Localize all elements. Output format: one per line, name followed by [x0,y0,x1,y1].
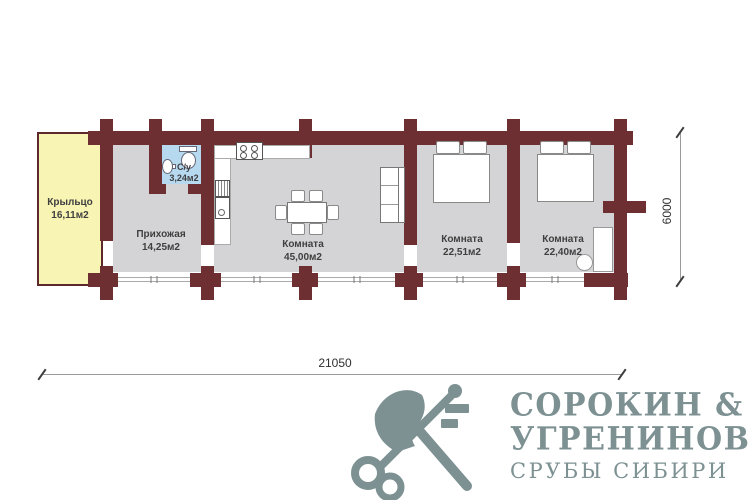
room-name: Крыльцо [47,196,93,209]
pillow [463,141,487,154]
logo-line1: СОРОКИН & [510,388,753,424]
living-bedroom1-wall [404,131,417,245]
double-bed [433,154,490,203]
room-label-bedroom2: Комната 22,40м2 [542,233,584,259]
room-area: 45,00м2 [282,251,324,264]
burner-icon [240,145,247,152]
room-label-bedroom1: Комната 22,51м2 [441,233,483,259]
window [221,274,292,286]
dimension-tick-icon [675,276,684,288]
bathroom-bottom-wall [149,184,166,194]
bottom-wall-segment [190,273,221,287]
pillow [436,141,460,154]
room-label-porch: Крыльцо 16,11м2 [47,196,93,222]
width-dimension-label: 21050 [318,356,351,370]
pillow [540,141,564,154]
chair [291,190,305,202]
room-name: Комната [282,238,324,251]
burner-icon [251,145,258,152]
floor-plan-page: Крыльцо 16,11м2 Прихожая 14,25м2 С/у 3,2… [0,0,753,502]
logo-line2: УГРЕНИНОВ [510,422,753,458]
chair [309,223,323,235]
room-label-hallway: Прихожая 14,25м2 [136,228,185,254]
bottom-wall-segment [88,273,118,287]
bottom-wall-segment [497,273,526,287]
stove [236,142,263,160]
room-label-bathroom: С/у 3,24м2 [169,162,198,184]
bedroom1-bedroom2-wall [507,131,520,243]
chair [291,223,305,235]
height-dimension-label: 6000 [660,191,674,231]
kitchen-cabinet [215,197,230,219]
axe-and-key-icon [345,378,495,500]
bottom-wall-segment [395,273,423,287]
sofa [380,167,399,223]
logo-line3: СРУБЫ СИБИРИ [510,458,753,484]
chair [309,190,323,202]
pillow [567,141,591,154]
room-area: 22,40м2 [542,246,584,259]
left-wall [100,131,113,241]
bathroom-bottom-wall [188,184,214,194]
room-area: 22,51м2 [441,246,483,259]
room-name: Комната [542,233,584,246]
room-area: 16,11м2 [47,209,93,222]
window [526,274,584,286]
window [118,274,190,286]
window [423,274,497,286]
dining-table [287,202,327,223]
room-label-living: Комната 45,00м2 [282,238,324,264]
height-dimension-line [680,132,681,281]
room-name: Прихожая [136,228,185,241]
wardrobe [593,227,613,272]
room-name: Комната [441,233,483,246]
window [318,274,395,286]
burner-icon [240,152,247,159]
cabinet-knob-icon [218,209,225,216]
width-dimension-line [42,374,622,375]
room-area: 14,25м2 [136,241,185,254]
room-area: 3,24м2 [169,173,198,184]
bottom-wall-segment [292,273,318,287]
right-wall-stub [603,201,646,213]
chair [275,205,287,220]
sofa-back [398,167,405,223]
double-bed [537,154,594,202]
chair [327,205,339,220]
room-name: С/у [169,162,198,173]
burner-icon [251,152,258,159]
logo-text: СОРОКИН & УГРЕНИНОВ СРУБЫ СИБИРИ [510,388,753,484]
kitchen-sink-unit [215,180,230,197]
